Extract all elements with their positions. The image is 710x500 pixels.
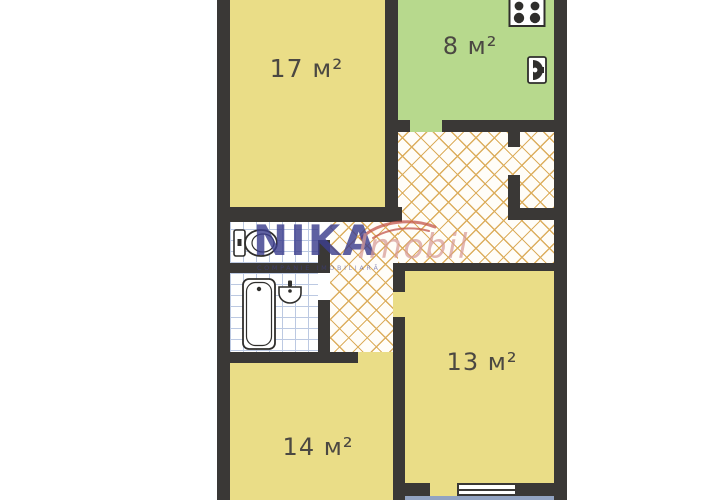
- wall-toilet-bath-divider: [230, 263, 320, 273]
- window: [457, 483, 517, 496]
- wall-living-kitchen: [385, 0, 398, 222]
- floorplan-canvas: 17 м² 8 м² 13 м² 14 м² NIKA Imobil COMPA…: [0, 0, 710, 500]
- window-mullion: [459, 489, 515, 491]
- hallway-floor-upper: [398, 120, 554, 263]
- bedroom-bottom-label: 14 м²: [273, 433, 363, 461]
- toilet-icon: [232, 228, 280, 258]
- wall-pantry-stub-bottom: [508, 175, 520, 212]
- wall-toilet-right: [318, 240, 330, 273]
- bathtub-icon: [242, 278, 276, 350]
- kitchen-sink-icon: [527, 56, 547, 84]
- bathroom-door-opening: [318, 273, 330, 300]
- hallway-floor-mid: [318, 222, 398, 363]
- wall-bedroom-right-bottom-right: [517, 483, 554, 496]
- wall-living-bottom: [230, 207, 402, 222]
- living-room-label: 17 м²: [259, 54, 354, 83]
- bedroom-right-door-opening: [393, 292, 405, 317]
- washbasin-icon: [276, 280, 304, 308]
- wall-pantry-bottom: [508, 208, 554, 220]
- bedroom-right-label: 13 м²: [437, 348, 527, 376]
- bedroom-right-floor: [405, 271, 554, 496]
- living-room-floor: [230, 0, 385, 207]
- bedroom-bottom-floor: [230, 363, 393, 500]
- stove-icon: [508, 0, 546, 27]
- toilet-door-opening: [318, 222, 330, 240]
- balcony-door-opening: [430, 483, 457, 496]
- wall-pantry-stub-top: [508, 132, 520, 147]
- wall-bedroom-right-bottom-left: [405, 483, 430, 496]
- wall-bedroom-bottom-top: [217, 352, 358, 363]
- kitchen-label: 8 м²: [425, 32, 515, 60]
- outer-wall-left: [217, 0, 230, 500]
- bedroom-bottom-door-opening: [358, 352, 393, 363]
- outer-wall-right: [554, 0, 567, 500]
- wall-bedroom-right-top: [393, 263, 554, 271]
- kitchen-door-opening: [410, 120, 442, 132]
- wall-bedroom-right-left-lower: [393, 317, 405, 500]
